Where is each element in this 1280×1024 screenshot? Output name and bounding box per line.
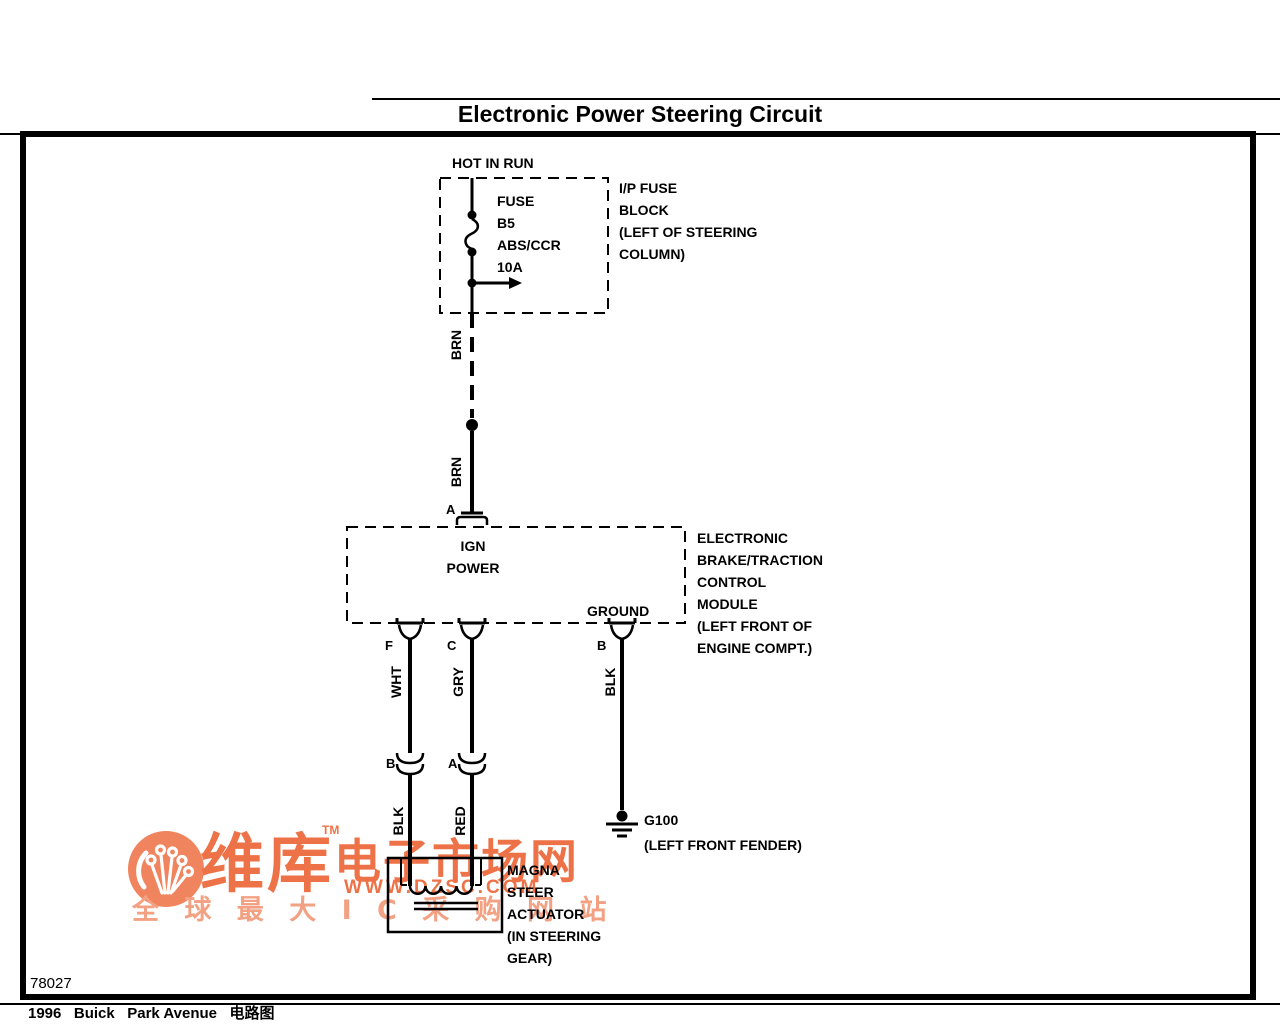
module-pin-b-connector xyxy=(611,625,633,639)
actuator-name-line: STEER xyxy=(507,883,554,901)
wire-wht-label: WHT xyxy=(389,666,403,698)
feed-arrow-icon xyxy=(509,277,522,289)
module-pin-a-label: A xyxy=(446,501,455,519)
inline-connector-b-bottom xyxy=(397,764,423,774)
module-ground-label: GROUND xyxy=(587,602,649,620)
module-pin-c-label: C xyxy=(447,637,456,655)
module-pin-f-label: F xyxy=(385,637,393,655)
ground-id-label: G100 xyxy=(644,811,678,829)
module-name-line: ENGINE COMPT.) xyxy=(697,639,812,657)
module-pin-f-connector xyxy=(399,625,421,639)
wiring-diagram-page: 维库 TM 电子市场网 WWW.DZSC.COM 全 球 最 大 I C 采 购… xyxy=(0,0,1280,1024)
module-pin-c-connector xyxy=(461,625,483,639)
actuator-box xyxy=(388,858,502,932)
inline-connector-a-label: A xyxy=(448,755,457,773)
fuse-location-line: I/P FUSE xyxy=(619,179,677,197)
inline-connector-b-top xyxy=(397,753,423,763)
actuator-name-line: ACTUATOR xyxy=(507,905,584,923)
module-pin-b-label: B xyxy=(597,637,606,655)
inline-connector-a-bottom xyxy=(459,764,485,774)
module-function-line1: IGN xyxy=(461,537,486,555)
fuse-position-label: B5 xyxy=(497,214,515,232)
actuator-name-line: MAGNA xyxy=(507,861,560,879)
wire-gry-label: GRY xyxy=(451,667,465,697)
module-name-line: (LEFT FRONT OF xyxy=(697,617,812,635)
fuse-element-symbol xyxy=(465,219,477,249)
inline-connector-a-top xyxy=(459,753,485,763)
wire-blk-ground-label: BLK xyxy=(603,668,617,697)
wire-brn-upper-label: BRN xyxy=(449,330,463,360)
module-name-line: BRAKE/TRACTION xyxy=(697,551,823,569)
wire-red-label: RED xyxy=(453,806,467,836)
ground-location-label: (LEFT FRONT FENDER) xyxy=(644,836,802,854)
actuator-coil-symbol xyxy=(410,886,472,894)
module-name-line: CONTROL xyxy=(697,573,766,591)
actuator-name-line: (IN STEERING xyxy=(507,927,601,945)
circuit-linework xyxy=(0,0,1280,1024)
actuator-name-line: GEAR) xyxy=(507,949,552,967)
fuse-location-line: (LEFT OF STEERING xyxy=(619,223,757,241)
module-name-line: ELECTRONIC xyxy=(697,529,788,547)
inline-connector-b-label: B xyxy=(386,755,395,773)
wire-brn-lower-label: BRN xyxy=(449,457,463,487)
splice-dot xyxy=(466,419,478,431)
module-pin-a-connector xyxy=(457,517,487,525)
fuse-location-line: COLUMN) xyxy=(619,245,685,263)
fuse-rating-label: 10A xyxy=(497,258,523,276)
hot-in-run-label: HOT IN RUN xyxy=(452,154,534,172)
module-name-line: MODULE xyxy=(697,595,758,613)
ground-symbol xyxy=(606,824,638,836)
fuse-name-label: FUSE xyxy=(497,192,534,210)
module-function-line2: POWER xyxy=(447,559,500,577)
fuse-location-line: BLOCK xyxy=(619,201,669,219)
wire-blk-actuator-label: BLK xyxy=(391,807,405,836)
fuse-circuit-label: ABS/CCR xyxy=(497,236,561,254)
page-title: Electronic Power Steering Circuit xyxy=(0,100,1280,128)
footer-caption: 1996 Buick Park Avenue 电路图 xyxy=(28,1005,275,1023)
diagram-number: 78027 xyxy=(30,975,72,993)
